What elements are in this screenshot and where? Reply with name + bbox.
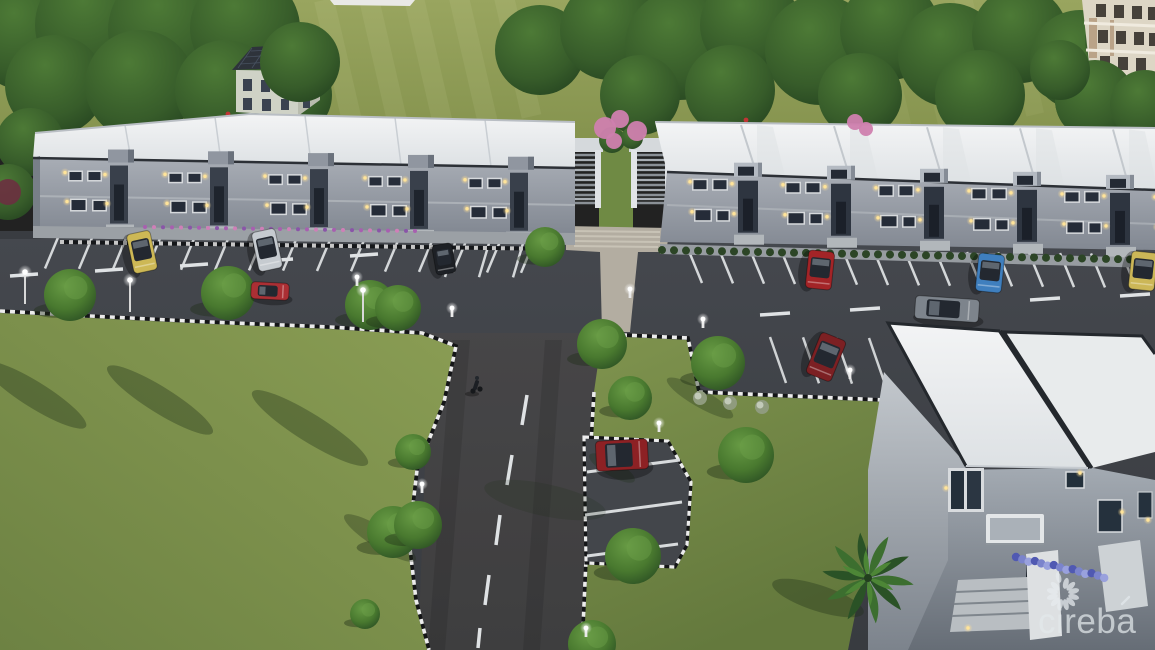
purple-flower: [242, 226, 246, 230]
wall-light: [163, 173, 166, 176]
window-glass: [694, 180, 707, 189]
bollard-head: [355, 275, 360, 280]
hedge-bush: [862, 250, 870, 258]
window-glass: [172, 202, 186, 212]
bollard-head: [657, 421, 662, 426]
wall-light: [1102, 194, 1105, 197]
window-glass: [714, 180, 727, 189]
hedge-bush: [694, 247, 702, 255]
entrance-door: [414, 190, 424, 226]
window-glass: [370, 177, 382, 185]
wall-light: [65, 200, 68, 203]
window-glass: [880, 186, 893, 195]
pink-blossom: [859, 122, 873, 136]
window-glass: [882, 216, 897, 226]
hedge-bush: [682, 247, 690, 255]
wall-light: [876, 216, 879, 219]
hedge-bush: [742, 248, 750, 256]
purple-flower: [170, 225, 174, 229]
purple-flower: [188, 226, 192, 230]
fg-balcony: [986, 514, 1044, 544]
hedge-bush: [934, 252, 942, 260]
lane-dash: [95, 269, 123, 271]
bollard-head: [701, 317, 706, 322]
tower-window: [924, 173, 940, 182]
hedge-bush: [1006, 253, 1014, 261]
background-tree: [685, 45, 775, 135]
wall-light: [463, 178, 466, 181]
window-glass: [372, 205, 386, 215]
purple-flower: [206, 226, 210, 230]
window-glass: [470, 179, 482, 187]
car-windshield: [607, 445, 616, 466]
wall-light: [730, 182, 733, 185]
purple-flower: [341, 228, 345, 232]
window-glass: [696, 210, 711, 220]
window-glass: [807, 183, 820, 192]
wall-light: [916, 188, 919, 191]
window-glass: [811, 214, 822, 223]
canopy-highlight: [362, 603, 376, 617]
hedge-bush: [922, 251, 930, 259]
wall-light: [63, 171, 66, 174]
wall-light: [1078, 471, 1081, 474]
wall-light: [363, 176, 366, 179]
lane-dash: [1120, 294, 1150, 296]
hedge-bush: [1078, 254, 1086, 262]
distant-white-roof: [330, 0, 415, 6]
window-glass: [1086, 192, 1099, 201]
tower-shade: [1037, 172, 1041, 186]
car-windshield: [259, 286, 265, 294]
canopy-highlight: [712, 343, 736, 367]
bollard-head: [628, 287, 633, 292]
wall-light: [503, 180, 506, 183]
entrance-door: [743, 199, 753, 231]
canopy-highlight: [540, 232, 558, 250]
wall-light: [205, 204, 208, 207]
window-glass: [70, 172, 82, 180]
lamp-head: [127, 277, 133, 283]
window-glass: [789, 213, 804, 223]
wall-light: [465, 207, 468, 210]
window-glass: [1066, 192, 1079, 201]
stair-tower-shade: [128, 150, 134, 163]
window-glass: [270, 176, 282, 184]
blue-flower: [1100, 574, 1108, 582]
canopy-highlight: [627, 536, 652, 561]
hedge-bush: [898, 251, 906, 259]
entrance-steps: [827, 238, 857, 248]
wall-light: [918, 218, 921, 221]
purple-flower: [296, 227, 300, 231]
watermark-text: cireba: [1038, 602, 1136, 641]
window-glass: [973, 189, 986, 198]
lane-dash: [760, 313, 790, 315]
pale-bush-highlight: [757, 402, 764, 409]
wall-light: [1009, 191, 1012, 194]
purple-flower: [161, 225, 165, 229]
purple-flower: [368, 228, 372, 232]
wall-light: [1062, 222, 1065, 225]
stair-tower-shade: [428, 155, 434, 168]
tower-shade: [944, 169, 948, 183]
wall-light: [944, 486, 947, 489]
tower-shade: [1130, 175, 1134, 189]
wall-light: [505, 209, 508, 212]
canopy-highlight: [412, 507, 434, 529]
hedge-bush: [766, 248, 774, 256]
hedge-bush: [658, 246, 666, 254]
entrance-door: [314, 188, 324, 224]
purple-flower: [350, 228, 354, 232]
window-glass: [189, 174, 201, 182]
rendering-canvas: cireba: [0, 0, 1155, 650]
lane-dash: [1030, 298, 1060, 300]
window-glass: [1068, 222, 1083, 232]
wall-light: [1146, 518, 1149, 521]
wall-light: [305, 205, 308, 208]
canopy-highlight: [222, 273, 246, 297]
aerial-development-rendering: cireba: [0, 0, 1155, 650]
entrance-door: [514, 192, 524, 228]
palm-crown: [864, 574, 872, 582]
wall-light: [823, 185, 826, 188]
window-glass: [289, 176, 301, 184]
bollard-head: [420, 482, 425, 487]
window-glass: [997, 220, 1008, 229]
wall-light: [732, 212, 735, 215]
window-glass: [787, 183, 800, 192]
pale-bush-highlight: [725, 398, 732, 405]
purple-flower: [377, 229, 381, 233]
fg-corner-window: [948, 468, 984, 512]
lamp-head: [22, 269, 28, 275]
hedge-bush: [1042, 254, 1050, 262]
stair-tower-shade: [228, 151, 234, 164]
car-hood-line: [283, 285, 284, 298]
window-glass: [904, 217, 915, 226]
stair-tower-shade: [328, 153, 334, 166]
hedge-bush: [874, 250, 882, 258]
entrance-door: [929, 205, 939, 237]
wall-light: [105, 202, 108, 205]
hedge-bush: [1030, 253, 1038, 261]
wall-light: [265, 203, 268, 206]
entrance-steps: [1013, 244, 1043, 254]
tower-shade: [758, 163, 762, 177]
tower-window: [831, 170, 847, 179]
hedge-bush: [730, 247, 738, 255]
entrance-door: [214, 186, 224, 222]
tower-window: [738, 167, 754, 176]
window-glass: [489, 179, 501, 187]
pale-bush-highlight: [695, 393, 702, 400]
purple-flower: [278, 227, 282, 231]
entrance-steps: [734, 235, 764, 245]
purple-flower: [395, 229, 399, 233]
hedge-bush: [790, 249, 798, 257]
purple-flower: [152, 225, 156, 229]
wall-light: [690, 210, 693, 213]
purple-flower: [323, 228, 327, 232]
entrance-door: [1022, 208, 1032, 240]
wall-light: [303, 176, 306, 179]
window-glass: [1090, 223, 1101, 232]
purple-flower: [359, 228, 363, 232]
canopy-highlight: [393, 291, 414, 312]
hedge-bush: [778, 248, 786, 256]
window-glass: [472, 207, 486, 217]
hedge-bush: [1090, 255, 1098, 263]
wall-light: [165, 202, 168, 205]
hedge-bush: [886, 251, 894, 259]
hedge-bush: [1114, 255, 1122, 263]
wall-light: [781, 183, 784, 186]
wall-light: [1011, 221, 1014, 224]
purple-flower: [386, 229, 390, 233]
wall-light: [405, 207, 408, 210]
wall-light: [1104, 224, 1107, 227]
canopy-highlight: [625, 382, 645, 402]
hedge-bush: [670, 246, 678, 254]
bollard-head: [584, 626, 589, 631]
hedge-bush: [754, 248, 762, 256]
window-glass: [900, 186, 913, 195]
pink-blossom: [627, 121, 647, 141]
canopy-highlight: [740, 435, 765, 460]
left-lawn: [0, 313, 456, 650]
stair-tower-shade: [528, 157, 534, 170]
hedge-bush: [838, 250, 846, 258]
tower-window: [1017, 176, 1033, 185]
lane-dash: [350, 254, 378, 256]
wall-light: [1060, 192, 1063, 195]
purple-flower: [251, 227, 255, 231]
wall-light: [966, 626, 969, 629]
purple-flower: [143, 225, 147, 229]
wall-light: [365, 205, 368, 208]
pink-blossom: [606, 133, 622, 149]
courtyard-grass-strip: [599, 140, 633, 230]
window-glass: [975, 219, 990, 229]
window-glass: [89, 172, 101, 180]
hedge-bush: [1054, 254, 1062, 262]
purple-flower: [224, 226, 228, 230]
wall-light: [783, 213, 786, 216]
car-red-car: [250, 282, 293, 307]
tower-window: [1110, 179, 1126, 188]
hedge-bush: [958, 252, 966, 260]
lane-dash: [478, 628, 480, 648]
bollard-head: [848, 368, 853, 373]
car-darkred-suv-bay: [595, 438, 654, 481]
tower-shade: [851, 166, 855, 180]
window-glass: [389, 177, 401, 185]
wall-light: [403, 178, 406, 181]
purple-flower: [314, 228, 318, 232]
wall-light: [263, 174, 266, 177]
window-glass: [272, 204, 286, 214]
hedge-bush: [1102, 255, 1110, 263]
window-glass: [993, 189, 1006, 198]
lane-dash: [850, 308, 880, 310]
background-tree: [1030, 40, 1090, 100]
entrance-door: [836, 202, 846, 234]
bollard-head: [450, 306, 455, 311]
pink-blossom: [611, 110, 629, 128]
purple-flower: [287, 227, 291, 231]
wall-light: [825, 215, 828, 218]
wall-light: [203, 175, 206, 178]
entrance-door: [114, 185, 124, 221]
lane-dash: [180, 264, 208, 266]
window-glass: [718, 211, 729, 220]
car-windshield: [929, 301, 940, 316]
purple-flower: [305, 227, 309, 231]
wall-light: [967, 189, 970, 192]
purple-flower: [215, 226, 219, 230]
canopy-highlight: [409, 439, 425, 455]
wall-light: [103, 173, 106, 176]
canopy-highlight: [64, 276, 87, 299]
window-glass: [170, 174, 182, 182]
purple-flower: [197, 226, 201, 230]
hedge-bush: [718, 247, 726, 255]
purple-flower: [332, 228, 336, 232]
purple-flower: [233, 226, 237, 230]
wall-light: [688, 180, 691, 183]
red-flower-accent: [744, 118, 749, 123]
wall-light: [874, 186, 877, 189]
hedge-bush: [1018, 253, 1026, 261]
lamp-head: [360, 287, 366, 293]
entrance-door: [1115, 211, 1125, 243]
wall-light: [969, 219, 972, 222]
purple-flower: [404, 229, 408, 233]
hedge-bush: [706, 247, 714, 255]
tree-canopy: [260, 22, 340, 102]
hedge-bush: [910, 251, 918, 259]
hedge-bush: [1066, 254, 1074, 262]
hedge-bush: [946, 252, 954, 260]
window-glass: [72, 200, 86, 210]
canopy-highlight: [596, 326, 619, 349]
purple-flower: [413, 229, 417, 233]
entrance-steps: [920, 241, 950, 251]
purple-flower: [179, 226, 183, 230]
hedge-bush: [850, 250, 858, 258]
wall-light: [1120, 510, 1123, 513]
left-townhouse-row: [33, 114, 575, 249]
